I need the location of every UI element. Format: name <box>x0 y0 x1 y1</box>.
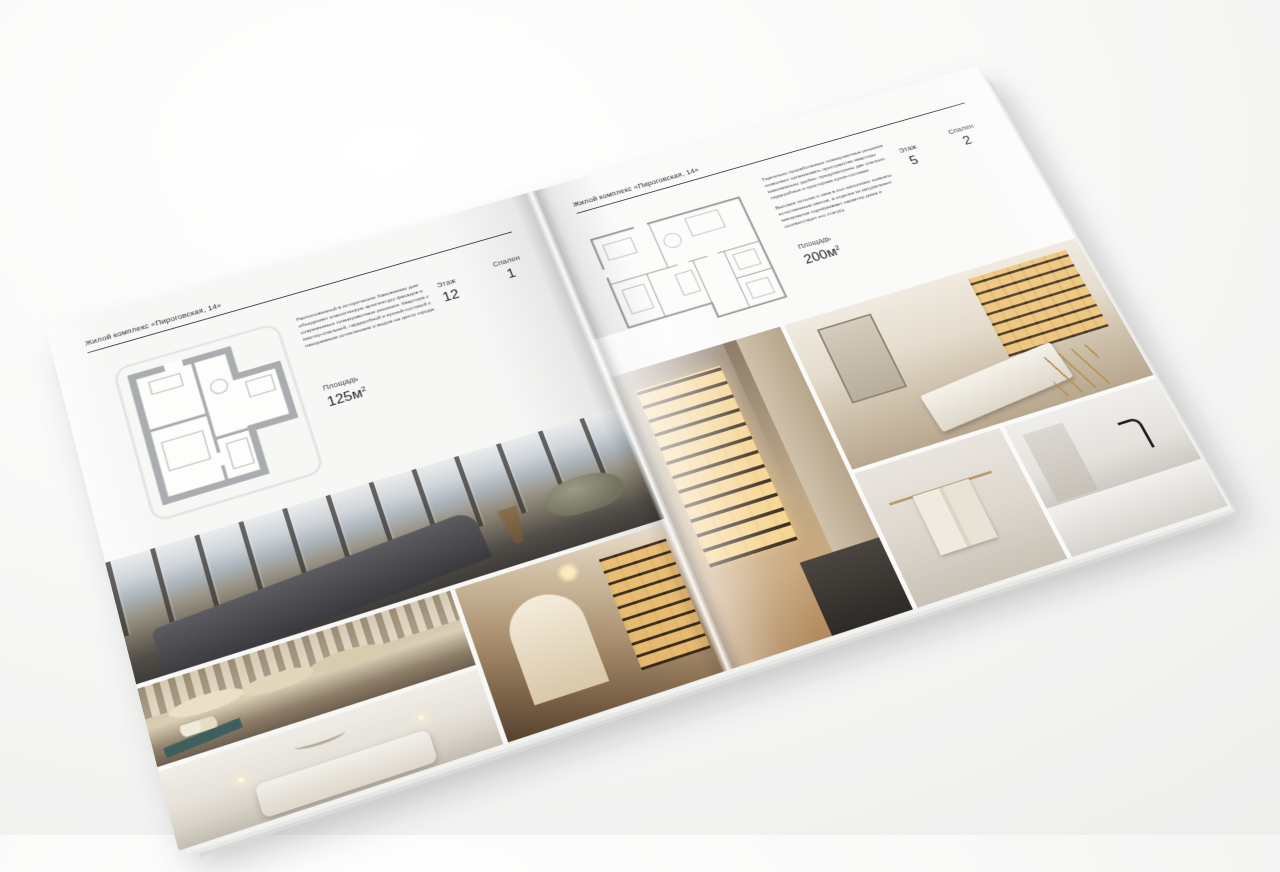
sconce-light <box>238 776 244 782</box>
backlit-display-shelves <box>968 250 1109 356</box>
wall-decor <box>292 726 346 753</box>
spec-bedrooms: Спален 1 <box>479 250 540 288</box>
spec-floor: Этаж 5 <box>879 138 944 175</box>
mirror <box>817 314 907 404</box>
sconce-light <box>418 715 424 721</box>
scene: Жилой комплекс «Пироговская, 14» Располо… <box>0 0 1280 835</box>
spec-bedrooms: Спален 2 <box>935 119 995 154</box>
spec-floor: Этаж 12 <box>416 271 483 311</box>
spec-area: Площадь 200м2 <box>797 233 845 267</box>
shower-niche <box>1023 422 1099 502</box>
black-faucet <box>1117 416 1155 453</box>
spec-area: Площадь 125м2 <box>322 373 370 410</box>
floor-plan-one-bedroom <box>84 312 335 536</box>
chandelier-glow <box>552 560 584 586</box>
arch-doorway <box>500 585 610 706</box>
